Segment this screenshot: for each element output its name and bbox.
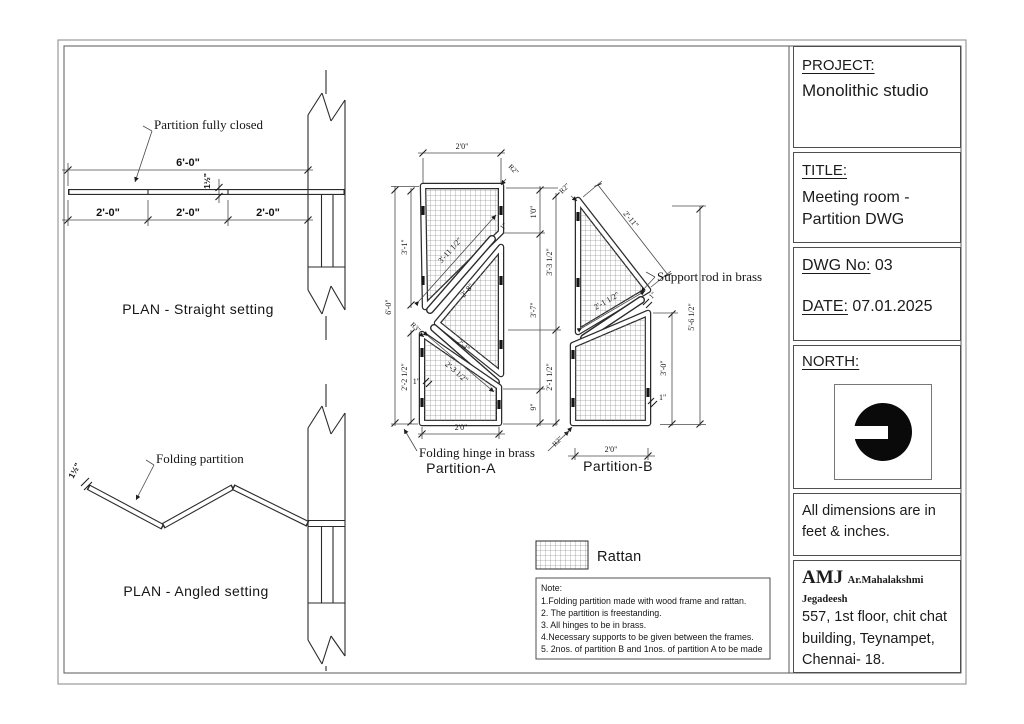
titleblock-north: NORTH: bbox=[793, 345, 961, 489]
callout-partition-fully-closed: Partition fully closed bbox=[135, 117, 264, 182]
titleblock-units: All dimensions are in feet & inches. bbox=[793, 493, 961, 556]
wall-angled bbox=[308, 384, 345, 671]
drawing-sheet: 6'-0" 2'-0" 2'-0" 2'-0" 1½" Partit bbox=[0, 0, 1024, 724]
plan-angled: 1½" Folding partition PLAN - Angled sett… bbox=[66, 384, 345, 671]
dim-b-hypotenuse-text: 2'-11" bbox=[621, 209, 640, 229]
callout-partition-fully-closed-text: Partition fully closed bbox=[154, 117, 264, 132]
titleblock-firm: AMJ Ar.Mahalakshmi Jegadeesh 557, 1st fl… bbox=[793, 560, 961, 673]
plan-straight-caption: PLAN - Straight setting bbox=[122, 301, 274, 317]
note-item-2: 2. The partition is freestanding. bbox=[541, 608, 662, 618]
address-line3: Chennai- 18. bbox=[802, 652, 885, 668]
address-line2: building, Teynampet, bbox=[802, 631, 935, 647]
dim-b-height-total: 5'-6 1/2" bbox=[660, 206, 706, 428]
dim-seg1-text: 2'-0" bbox=[96, 207, 120, 219]
notes-box: Note: 1.Folding partition made with wood… bbox=[536, 578, 770, 659]
dim-a-radius-top-text: R2" bbox=[507, 163, 521, 177]
date-value: 07.01.2025 bbox=[852, 298, 932, 315]
project-name: Monolithic studio bbox=[802, 81, 960, 101]
dim-straight-total: 6'-0" bbox=[62, 157, 313, 186]
units-note: All dimensions are in feet & inches. bbox=[802, 501, 960, 543]
note-item-3: 3. All hinges to be in brass. bbox=[541, 620, 646, 630]
date-row: DATE: 07.01.2025 bbox=[802, 298, 960, 316]
angled-partition-zigzag bbox=[88, 487, 308, 527]
titleblock-title: TITLE: Meeting room - Partition DWG bbox=[793, 152, 961, 243]
dim-a-width-top-text: 2'0" bbox=[456, 142, 469, 151]
dim-angled-thickness: 1½" bbox=[66, 461, 92, 490]
rattan-label: Rattan bbox=[597, 549, 642, 565]
dim-a-width-bottom-text: 2'0" bbox=[455, 423, 468, 432]
dim-b-radius-top: R2" bbox=[558, 182, 577, 201]
partition-b: 2'-11" R2" 2'-1 1/2" 1" Support rod in b… bbox=[551, 181, 762, 474]
dim-a-right-top-text: 1'0" bbox=[529, 206, 538, 219]
dwg-no-label: DWG No: bbox=[802, 257, 870, 274]
dim-straight-segments: 2'-0" 2'-0" 2'-0" bbox=[62, 200, 313, 226]
dim-a-width-top: 2'0" bbox=[418, 142, 505, 183]
date-label: DATE: bbox=[802, 298, 848, 315]
units-note-line2: feet & inches. bbox=[802, 524, 890, 540]
drawing-title: Meeting room - Partition DWG bbox=[802, 187, 960, 231]
dim-a-panel1-height: 3'-1" bbox=[400, 188, 415, 309]
note-item-4: 4.Necessary supports to be given between… bbox=[541, 632, 754, 642]
dim-a-right-bottom-text: 9" bbox=[529, 403, 538, 410]
wall-straight bbox=[308, 70, 345, 340]
dim-b-radius-bottom: R2" bbox=[551, 427, 572, 448]
dim-a-right-mid-text: 3'-7" bbox=[529, 302, 538, 317]
dim-a-right-upper-text: 3'-3 1/2" bbox=[545, 248, 554, 276]
units-note-line1: All dimensions are in bbox=[802, 503, 936, 519]
titleblock-dwg-date: DWG No: 03 DATE: 07.01.2025 bbox=[793, 247, 961, 341]
dwg-no-row: DWG No: 03 bbox=[802, 257, 960, 275]
firm-initials: AMJ bbox=[802, 567, 843, 588]
callout-folding-partition-text: Folding partition bbox=[156, 451, 244, 466]
dim-b-panel-thickness-text: 1" bbox=[659, 393, 666, 402]
notes-heading: Note: bbox=[541, 583, 562, 593]
dim-straight-thickness-text: 1½" bbox=[202, 173, 212, 189]
north-label: NORTH: bbox=[802, 353, 960, 370]
dim-a-thickness-left-text: 1" bbox=[413, 377, 420, 386]
dim-a-panel3-height-text: 2'-2 1/2" bbox=[400, 363, 409, 391]
callout-folding-hinge-text: Folding hinge in brass bbox=[419, 445, 535, 460]
rattan-swatch bbox=[536, 541, 588, 569]
title-label: TITLE: bbox=[802, 162, 960, 179]
dim-b-width-bottom-text: 2'0" bbox=[605, 445, 618, 454]
partition-b-caption: Partition-B bbox=[583, 458, 653, 474]
titleblock-project: PROJECT: Monolithic studio bbox=[793, 46, 961, 148]
dim-b-height-total-text: 5'-6 1/2" bbox=[687, 303, 696, 331]
plan-straight: 6'-0" 2'-0" 2'-0" 2'-0" 1½" Partit bbox=[62, 70, 345, 340]
partition-a-caption: Partition-A bbox=[426, 460, 496, 476]
north-symbol bbox=[834, 384, 932, 480]
firm-address: 557, 1st floor, chit chat building, Teyn… bbox=[802, 607, 960, 672]
dim-a-radius-top: R2" bbox=[501, 163, 520, 185]
partition-a: 2'0" R2" 6'-0" 3'-1" 2'-2 1/2" bbox=[384, 142, 569, 476]
dim-seg2-text: 2'-0" bbox=[176, 207, 200, 219]
dim-b-lower-height: 3'-0" bbox=[653, 311, 678, 428]
project-label: PROJECT: bbox=[802, 57, 960, 74]
dim-b-lower-height-text: 3'-0" bbox=[659, 360, 668, 375]
address-line1: 557, 1st floor, chit chat bbox=[802, 609, 947, 625]
north-arrow-notch bbox=[852, 426, 888, 439]
dim-a-right-lower-text: 2'-1 1/2" bbox=[545, 363, 554, 391]
note-item-1: 1.Folding partition made with wood frame… bbox=[541, 596, 746, 606]
note-item-5: 5. 2nos. of partition B and 1nos. of par… bbox=[541, 644, 763, 654]
legend-rattan: Rattan bbox=[536, 541, 642, 569]
dim-a-panel1-height-text: 3'-1" bbox=[400, 239, 409, 254]
dim-angled-thickness-text: 1½" bbox=[66, 461, 82, 480]
dwg-no-value: 03 bbox=[875, 257, 893, 274]
callout-support-rod-text: Support rod in brass bbox=[657, 269, 762, 284]
drawing-title-line2: Partition DWG bbox=[802, 211, 904, 228]
firm-row: AMJ Ar.Mahalakshmi Jegadeesh bbox=[802, 567, 960, 607]
callout-support-rod: Support rod in brass bbox=[641, 269, 762, 292]
dim-straight-total-text: 6'-0" bbox=[176, 157, 200, 169]
dim-a-height-total-text: 6'-0" bbox=[384, 299, 393, 314]
drawing-title-line1: Meeting room - bbox=[802, 189, 910, 206]
dim-seg3-text: 2'-0" bbox=[256, 207, 280, 219]
plan-angled-caption: PLAN - Angled setting bbox=[123, 583, 268, 599]
dim-straight-thickness: 1½" bbox=[202, 173, 223, 203]
dim-b-radius-top-text: R2" bbox=[558, 182, 572, 196]
